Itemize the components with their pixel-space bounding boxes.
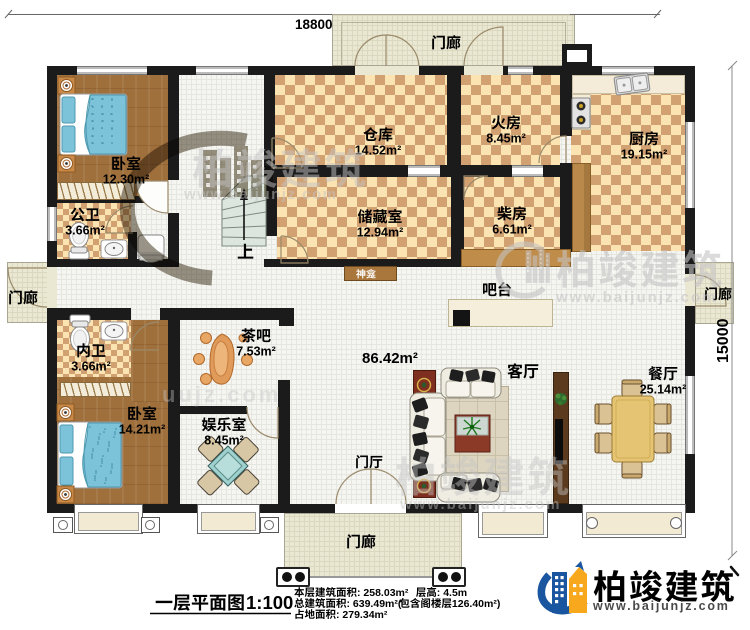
svg-text:www.baijunjz.com: www.baijunjz.com xyxy=(183,186,337,203)
svg-text:15000: 15000 xyxy=(715,318,732,363)
svg-text:3.66m²: 3.66m² xyxy=(71,360,111,374)
svg-text:126.40m²): 126.40m²) xyxy=(452,598,500,610)
svg-text:8.45m²: 8.45m² xyxy=(486,132,526,146)
svg-text:www.baijunjz.com: www.baijunjz.com xyxy=(399,496,561,513)
svg-text:: 279.34m²: : 279.34m² xyxy=(336,609,388,621)
svg-text:www.baijunjz.com: www.baijunjz.com xyxy=(555,289,717,306)
svg-text:7.53m²: 7.53m² xyxy=(236,345,276,359)
svg-text:uujz.com: uujz.com xyxy=(162,382,281,407)
svg-text:12.94m²: 12.94m² xyxy=(357,226,404,240)
svg-text:6.61m²: 6.61m² xyxy=(492,223,532,237)
svg-text:www.baijunjz.com: www.baijunjz.com xyxy=(592,599,730,613)
svg-text:18800: 18800 xyxy=(295,17,333,32)
svg-text:1:100: 1:100 xyxy=(246,592,293,613)
svg-text:25.14m²: 25.14m² xyxy=(640,383,687,397)
svg-text:8.45m²: 8.45m² xyxy=(204,434,244,448)
svg-text:14.21m²: 14.21m² xyxy=(119,423,166,437)
svg-text:3.66m²: 3.66m² xyxy=(65,224,105,238)
svg-text:86.42m²: 86.42m² xyxy=(362,350,418,367)
svg-text:19.15m²: 19.15m² xyxy=(621,148,668,162)
